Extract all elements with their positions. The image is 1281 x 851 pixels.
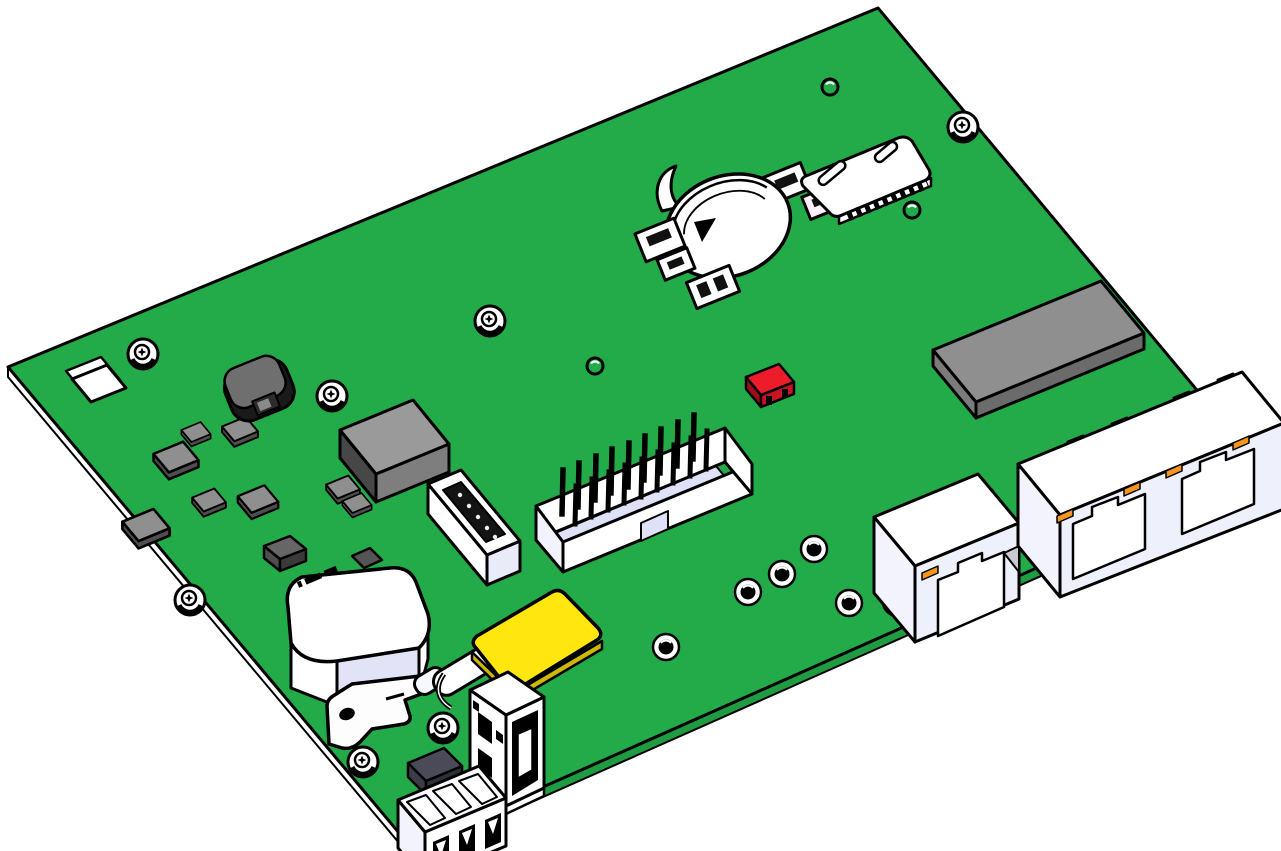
solder-pad — [653, 634, 679, 660]
solder-pad — [801, 536, 827, 562]
via — [904, 202, 920, 218]
mounting-hole — [948, 112, 978, 142]
pcb-illustration — [0, 0, 1281, 851]
mounting-hole — [317, 381, 347, 411]
usb-tongue — [518, 728, 532, 778]
mounting-hole — [175, 585, 205, 615]
mounting-hole — [475, 306, 505, 336]
solder-pad — [769, 561, 795, 587]
cad-render-canvas — [0, 0, 1281, 851]
mounting-hole — [428, 713, 458, 743]
mounting-hole — [348, 747, 378, 777]
via — [822, 79, 838, 95]
solder-pad — [836, 590, 862, 616]
via — [587, 358, 603, 374]
solder-pad — [735, 579, 761, 605]
mounting-hole — [128, 339, 158, 369]
